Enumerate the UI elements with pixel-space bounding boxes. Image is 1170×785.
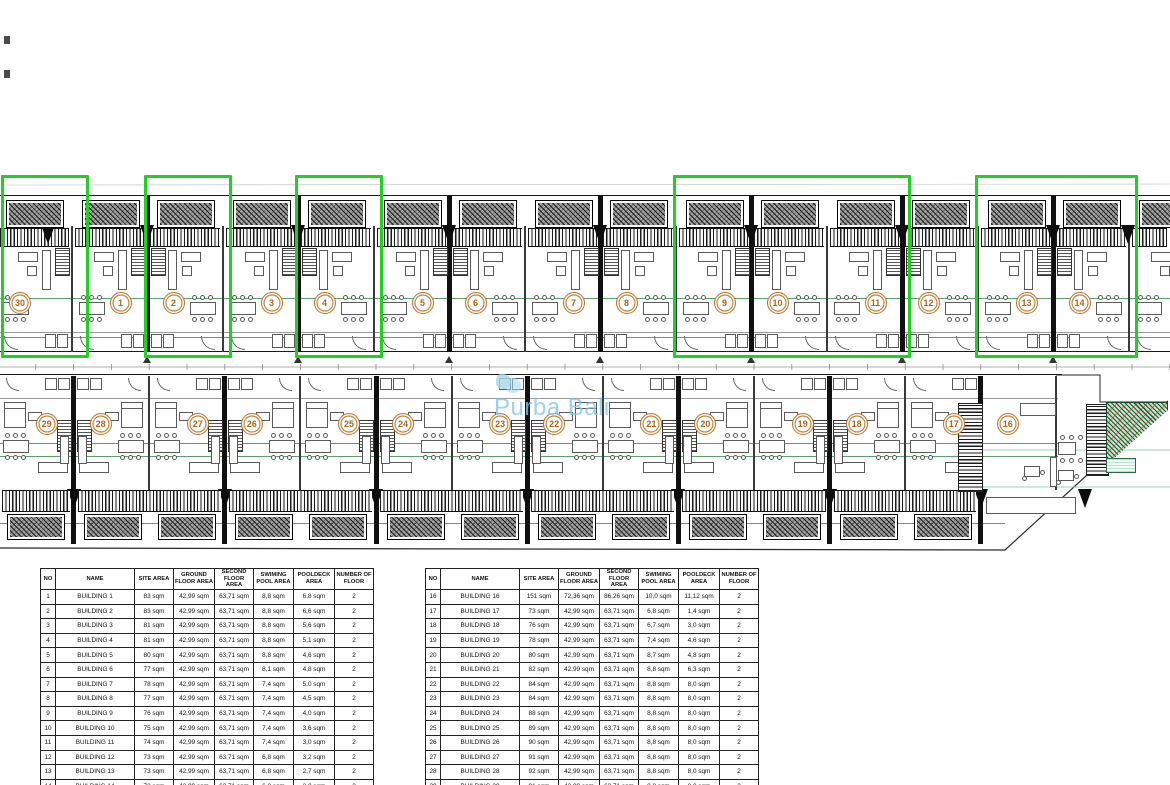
bed-pillow xyxy=(155,402,177,409)
entry-door-arc xyxy=(884,378,897,391)
chair-dot xyxy=(287,455,292,460)
table-cell: 91 sqm xyxy=(520,750,559,765)
table-cell: 8 xyxy=(41,692,56,707)
table-cell: 8,8 sqm xyxy=(639,677,679,692)
kitchen-counter xyxy=(634,252,654,262)
table-cell: 84 sqm xyxy=(520,692,559,707)
closet xyxy=(380,378,392,390)
chair-dot xyxy=(618,455,623,460)
chair-dot xyxy=(172,455,177,460)
table-cell: 76 sqm xyxy=(520,619,559,634)
closet xyxy=(682,378,694,390)
entry-door-arc xyxy=(582,378,595,391)
table-cell: 74 sqm xyxy=(135,735,174,750)
chair-dot xyxy=(391,317,396,322)
private-pool xyxy=(689,514,747,540)
chair-dot xyxy=(423,455,428,460)
table-cell: 2 xyxy=(720,765,759,780)
table-cell: 42,99 sqm xyxy=(174,604,215,619)
table-cell: 63,71 sqm xyxy=(600,633,639,648)
table-cell: 63,71 sqm xyxy=(215,692,254,707)
bathroom-fixture xyxy=(574,334,585,348)
table-row: 13BUILDING 1373 sqm42,99 sqm63,71 sqm6,8… xyxy=(41,765,374,780)
table-cell: 4,0 sqm xyxy=(294,706,335,721)
table-cell: BUILDING 22 xyxy=(441,677,520,692)
chair-dot xyxy=(1138,295,1143,300)
chair-dot xyxy=(502,295,507,300)
table-cell: 22 xyxy=(426,677,441,692)
table xyxy=(556,266,566,276)
table-header-cell: SWIMING POOL AREA xyxy=(254,569,294,590)
table-cell: 63,71 sqm xyxy=(600,662,639,677)
table-cell: 7,4 sqm xyxy=(639,633,679,648)
chair-dot xyxy=(582,433,587,438)
table-cell: 63,71 sqm xyxy=(600,692,639,707)
table-cell: 80 sqm xyxy=(135,648,174,663)
closet xyxy=(77,378,89,390)
unit-highlight-box xyxy=(1,175,89,358)
table-cell: 72,36 sqm xyxy=(559,589,600,604)
chair-dot xyxy=(13,455,18,460)
table-cell: 2 xyxy=(720,706,759,721)
entry-door-arc xyxy=(1137,336,1151,350)
table-cell: 2 xyxy=(720,692,759,707)
chair-dot xyxy=(876,433,881,438)
table-cell: 81 sqm xyxy=(135,633,174,648)
pool-deck-band xyxy=(380,490,523,512)
table-cell: 6,8 sqm xyxy=(254,779,294,785)
table-cell: 2 xyxy=(335,735,374,750)
table-cell: 92 sqm xyxy=(520,765,559,780)
building-area-table-right: NONAMESITE AREAGROUND FLOOR AREASECOND F… xyxy=(425,568,759,785)
chair-dot xyxy=(928,455,933,460)
chair-dot xyxy=(542,317,547,322)
table-cell: 25 xyxy=(426,721,441,736)
table-cell: 2 xyxy=(720,779,759,785)
chair-dot xyxy=(323,433,328,438)
sofa xyxy=(381,436,390,464)
table-cell: 78 sqm xyxy=(520,633,559,648)
table-cell: 42,99 sqm xyxy=(559,677,600,692)
unit-number-badge: 25 xyxy=(338,413,360,435)
unit-number-badge: 3 xyxy=(261,292,283,314)
table-cell: 63,71 sqm xyxy=(600,779,639,785)
table-cell: BUILDING 4 xyxy=(56,633,135,648)
table-cell: 2 xyxy=(720,619,759,634)
unit-highlight-box xyxy=(144,175,232,358)
chair-dot xyxy=(884,433,889,438)
chair-dot xyxy=(423,433,428,438)
table-cell: 8,0 sqm xyxy=(679,750,720,765)
table-row: 19BUILDING 1978 sqm42,99 sqm63,71 sqm7,4… xyxy=(426,633,759,648)
table-cell: 3,6 sqm xyxy=(294,721,335,736)
table-cell: 73 sqm xyxy=(135,750,174,765)
chair-dot xyxy=(1056,480,1061,485)
table-cell: 42,99 sqm xyxy=(559,721,600,736)
bathroom-fixture xyxy=(121,334,132,348)
chair-dot xyxy=(510,295,515,300)
unit-number-badge: 28 xyxy=(90,413,112,435)
unit-number-badge: 12 xyxy=(918,292,940,314)
sofa xyxy=(532,436,541,464)
chair-dot xyxy=(884,455,889,460)
sofa xyxy=(211,436,220,464)
party-wall xyxy=(827,376,832,544)
chair-dot xyxy=(502,317,507,322)
chair-dot xyxy=(1040,470,1045,475)
unit-highlight-box xyxy=(295,175,383,358)
table-cell: BUILDING 12 xyxy=(56,750,135,765)
kitchen-counter xyxy=(483,252,503,262)
table-row: 11BUILDING 1174 sqm42,99 sqm63,71 sqm7,4… xyxy=(41,735,374,750)
chair-dot xyxy=(475,433,480,438)
table-cell: 11 xyxy=(41,735,56,750)
table-cell: 2 xyxy=(720,677,759,692)
entry-door-arc xyxy=(128,378,141,391)
chair-dot xyxy=(741,455,746,460)
closet xyxy=(801,378,813,390)
dining-table xyxy=(230,302,256,315)
table-cell: BUILDING 23 xyxy=(441,692,520,707)
table-cell: 6,8 sqm xyxy=(639,604,679,619)
dining-table xyxy=(1058,442,1076,455)
pool-deck-band xyxy=(834,490,976,512)
table-cell: 12 xyxy=(41,750,56,765)
table-cell: BUILDING 8 xyxy=(56,692,135,707)
table-cell: BUILDING 3 xyxy=(56,619,135,634)
unit-number-badge: 17 xyxy=(943,413,965,435)
table-row: 5BUILDING 580 sqm42,99 sqm63,71 sqm8,8 s… xyxy=(41,648,374,663)
table-cell: 4,6 sqm xyxy=(294,648,335,663)
dining-table xyxy=(457,440,483,453)
entry-door-arc xyxy=(913,378,926,391)
chair-dot xyxy=(550,295,555,300)
table-cell: 63,71 sqm xyxy=(600,706,639,721)
closet xyxy=(196,378,208,390)
chair-dot xyxy=(431,433,436,438)
stair-hatch xyxy=(604,248,619,276)
table-cell: 5 xyxy=(41,648,56,663)
table-cell: 2 xyxy=(335,619,374,634)
table-header-cell: SITE AREA xyxy=(135,569,174,590)
entry-door-arc xyxy=(431,378,444,391)
closet xyxy=(347,378,359,390)
table-cell: 42,99 sqm xyxy=(174,648,215,663)
table-cell: 2 xyxy=(335,648,374,663)
sofa xyxy=(514,436,523,464)
table-cell: 2 xyxy=(720,604,759,619)
table-cell: BUILDING 18 xyxy=(441,619,520,634)
table-cell: 83 sqm xyxy=(135,604,174,619)
chair-dot xyxy=(534,295,539,300)
stair-triangle xyxy=(1078,489,1092,508)
bathroom-fixture xyxy=(918,334,929,348)
table xyxy=(484,266,494,276)
table-cell: 42,99 sqm xyxy=(559,692,600,707)
watermark-logo-icon xyxy=(506,378,521,393)
chair-dot xyxy=(120,433,125,438)
table-cell: 73 sqm xyxy=(520,604,559,619)
table-cell: BUILDING 2 xyxy=(56,604,135,619)
chair-dot xyxy=(271,433,276,438)
table-cell: 6,8 sqm xyxy=(254,765,294,780)
unit-wall xyxy=(451,376,453,490)
closet xyxy=(209,378,221,390)
entry-door-arc xyxy=(956,336,970,350)
bed-pillow xyxy=(726,402,748,409)
unit-number-badge: 24 xyxy=(392,413,414,435)
dining-table xyxy=(759,440,785,453)
bed-pillow xyxy=(424,402,446,409)
table-cell: 63,71 sqm xyxy=(215,648,254,663)
table-cell: 42,99 sqm xyxy=(174,779,215,785)
chair-dot xyxy=(279,455,284,460)
sofa xyxy=(78,436,87,464)
table-cell: 28 xyxy=(426,765,441,780)
chair-dot xyxy=(876,455,881,460)
table-cell: 5,1 sqm xyxy=(294,633,335,648)
table xyxy=(1160,266,1170,276)
table-cell: 63,71 sqm xyxy=(215,735,254,750)
private-pool xyxy=(387,514,445,540)
table-header-cell: SECOND FLOOR AREA xyxy=(215,569,254,590)
bathroom-fixture xyxy=(423,334,434,348)
chair-dot xyxy=(5,433,10,438)
table-cell: 7,4 sqm xyxy=(254,677,294,692)
closet xyxy=(833,378,845,390)
table-header-cell: GROUND FLOOR AREA xyxy=(559,569,600,590)
entry-door-arc xyxy=(762,378,775,391)
chair-dot xyxy=(912,433,917,438)
table-cell: 42,99 sqm xyxy=(559,604,600,619)
table-cell: 63,71 sqm xyxy=(215,750,254,765)
table-cell: 8,8 sqm xyxy=(639,779,679,785)
bathroom-fixture xyxy=(465,334,476,348)
private-pool xyxy=(840,514,898,540)
table-cell: 76 sqm xyxy=(135,706,174,721)
table xyxy=(405,266,415,276)
table-cell: 2 xyxy=(720,633,759,648)
chair-dot xyxy=(645,295,650,300)
kitchen-counter xyxy=(547,252,567,262)
chair-dot xyxy=(955,317,960,322)
entry-door-arc xyxy=(654,336,668,350)
bed-pillow xyxy=(4,402,26,409)
closet xyxy=(544,378,556,390)
kitchen-counter xyxy=(396,252,416,262)
sofa xyxy=(621,250,630,290)
table-cell: 6,3 sqm xyxy=(679,662,720,677)
table-cell: 2 xyxy=(335,677,374,692)
row2-top-line xyxy=(0,374,1062,375)
table-cell: 6,7 sqm xyxy=(639,619,679,634)
chair-dot xyxy=(733,455,738,460)
chair-dot xyxy=(769,433,774,438)
chair-dot xyxy=(610,455,615,460)
chair-dot xyxy=(21,433,26,438)
chair-dot xyxy=(307,433,312,438)
chair-dot xyxy=(510,317,515,322)
chair-dot xyxy=(618,433,623,438)
table-cell: BUILDING 13 xyxy=(56,765,135,780)
table-cell: BUILDING 21 xyxy=(441,662,520,677)
dining-table xyxy=(608,440,634,453)
sofa xyxy=(420,250,429,290)
unit-number-badge: 20 xyxy=(694,413,716,435)
table-cell: 2 xyxy=(335,633,374,648)
chair-dot xyxy=(383,295,388,300)
chair-dot xyxy=(892,433,897,438)
chair-dot xyxy=(475,455,480,460)
table-cell: 77 sqm xyxy=(135,692,174,707)
party-wall xyxy=(374,376,379,544)
sofa xyxy=(816,436,825,464)
chair-dot xyxy=(947,295,952,300)
table-cell: 2 xyxy=(335,721,374,736)
bathroom-fixture xyxy=(435,334,446,348)
private-pool xyxy=(612,514,670,540)
dining-table xyxy=(154,440,180,453)
table-cell: 2 xyxy=(41,604,56,619)
planting-bed xyxy=(1106,402,1168,459)
chair-dot xyxy=(1060,435,1065,440)
entry-arrow xyxy=(445,356,453,363)
chair-dot xyxy=(761,433,766,438)
chair-dot xyxy=(494,317,499,322)
rooftop-pool xyxy=(82,200,140,228)
unit-wall xyxy=(904,376,906,490)
chair-dot xyxy=(315,433,320,438)
table-cell: 8,8 sqm xyxy=(639,706,679,721)
planting-bed-low xyxy=(1106,458,1136,473)
table-cell: 83 sqm xyxy=(135,589,174,604)
table-cell: BUILDING 16 xyxy=(441,589,520,604)
unit-wall xyxy=(299,376,301,490)
chair-dot xyxy=(467,433,472,438)
entry-door-arc xyxy=(382,336,396,350)
table-row: 29BUILDING 2991 sqm42,99 sqm63,71 sqm8,8… xyxy=(426,779,759,785)
table-cell: 4,5 sqm xyxy=(294,692,335,707)
table-cell: BUILDING 26 xyxy=(441,735,520,750)
chair-dot xyxy=(920,455,925,460)
chair-dot xyxy=(128,433,133,438)
table-cell: BUILDING 24 xyxy=(441,706,520,721)
table-cell: 17 xyxy=(426,604,441,619)
desk xyxy=(1058,470,1074,481)
table-cell: 16 xyxy=(426,589,441,604)
dining-table xyxy=(532,302,558,315)
private-pool xyxy=(461,514,519,540)
rooftop-pool xyxy=(233,200,291,228)
table-header-cell: NO xyxy=(426,569,441,590)
unit-number-badge: 7 xyxy=(563,292,585,314)
chair-dot xyxy=(21,455,26,460)
table-cell: BUILDING 7 xyxy=(56,677,135,692)
table-row: 3BUILDING 381 sqm42,99 sqm63,71 sqm8,8 s… xyxy=(41,619,374,634)
table-cell: 151 sqm xyxy=(520,589,559,604)
dining-table xyxy=(1136,302,1162,315)
table-cell: 42,99 sqm xyxy=(174,677,215,692)
bathroom-fixture xyxy=(586,334,597,348)
dining-table xyxy=(118,440,144,453)
chair-dot xyxy=(947,317,952,322)
bed-pillow xyxy=(458,402,480,409)
table-cell: 42,99 sqm xyxy=(559,648,600,663)
chair-dot xyxy=(164,455,169,460)
chair-dot xyxy=(232,295,237,300)
table-cell: 8,8 sqm xyxy=(254,604,294,619)
table-cell: 63,71 sqm xyxy=(600,677,639,692)
table-cell: 8,0 sqm xyxy=(679,735,720,750)
kitchen-counter xyxy=(1151,252,1170,262)
entry-door-arc xyxy=(611,378,624,391)
chair-dot xyxy=(928,433,933,438)
sofa xyxy=(362,436,371,464)
table-cell: 81 sqm xyxy=(135,619,174,634)
chair-dot xyxy=(725,455,730,460)
closet xyxy=(45,378,57,390)
table-header-cell: POOLDECK AREA xyxy=(679,569,720,590)
chair-dot xyxy=(391,295,396,300)
private-pool xyxy=(914,514,972,540)
party-wall xyxy=(71,376,76,544)
table-cell: 14 xyxy=(41,779,56,785)
unit-number-badge: 19 xyxy=(792,413,814,435)
table-cell: 42,99 sqm xyxy=(174,589,215,604)
pool-deck-band xyxy=(531,490,674,512)
unit-number-badge: 26 xyxy=(241,413,263,435)
entry-door-arc xyxy=(279,378,292,391)
chair-dot xyxy=(128,455,133,460)
table xyxy=(103,266,113,276)
dining-table xyxy=(421,440,447,453)
chair-dot xyxy=(494,295,499,300)
table-cell: 2 xyxy=(335,604,374,619)
table-cell: 3 xyxy=(41,619,56,634)
table-row: 14BUILDING 1472 sqm42,99 sqm63,71 sqm6,8… xyxy=(41,779,374,785)
table-cell: 63,71 sqm xyxy=(600,750,639,765)
chair-dot xyxy=(653,317,658,322)
unit-number-badge: 29 xyxy=(36,413,58,435)
table-cell: 63,71 sqm xyxy=(215,706,254,721)
table-cell: BUILDING 25 xyxy=(441,721,520,736)
table-cell: 7,4 sqm xyxy=(254,692,294,707)
private-pool xyxy=(7,514,65,540)
table-cell: 63,71 sqm xyxy=(600,735,639,750)
table-cell: 8,0 sqm xyxy=(679,692,720,707)
table-cell: 6,6 sqm xyxy=(294,604,335,619)
chair-dot xyxy=(172,433,177,438)
table-row: 23BUILDING 2384 sqm42,99 sqm63,71 sqm8,8… xyxy=(426,692,759,707)
table-header-cell: NO xyxy=(41,569,56,590)
chair-dot xyxy=(1060,458,1065,463)
table-cell: 86,26 sqm xyxy=(600,589,639,604)
table-header-cell: NUMBER OF FLOOR xyxy=(335,569,374,590)
chair-dot xyxy=(459,433,464,438)
table-cell: 63,71 sqm xyxy=(600,765,639,780)
chair-dot xyxy=(399,295,404,300)
table-cell: BUILDING 20 xyxy=(441,648,520,663)
chair-dot xyxy=(574,455,579,460)
chair-dot xyxy=(156,433,161,438)
table-cell: 10 xyxy=(41,721,56,736)
table-row: 20BUILDING 2080 sqm42,99 sqm63,71 sqm8,7… xyxy=(426,648,759,663)
chair-dot xyxy=(741,433,746,438)
sofa xyxy=(269,250,278,290)
chair-dot xyxy=(156,455,161,460)
table xyxy=(937,266,947,276)
rooftop-pool xyxy=(384,200,442,228)
